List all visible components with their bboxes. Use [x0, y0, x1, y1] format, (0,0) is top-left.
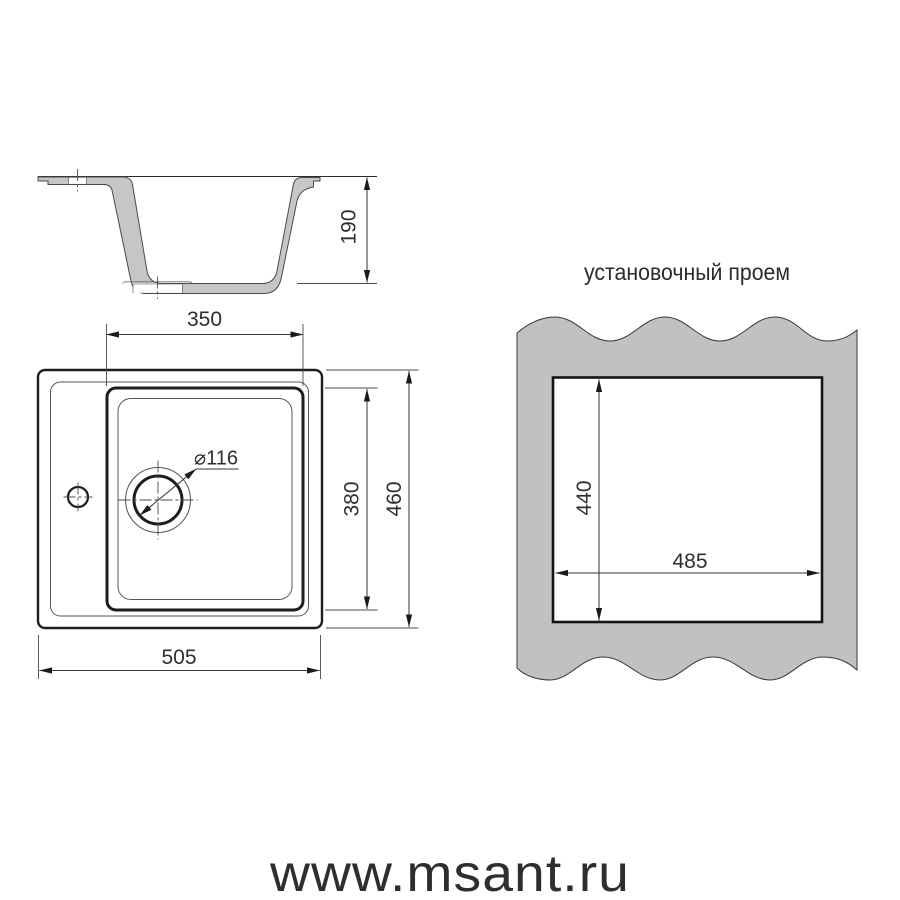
- sink-dimension-drawing: 190 ⌀116 350 380 460: [0, 0, 900, 900]
- dim-505-label: 505: [161, 646, 196, 669]
- section-view: 190: [38, 169, 377, 299]
- sink-rim-inner-edge: [51, 382, 309, 616]
- dim-350-label: 350: [187, 308, 222, 331]
- bowl-inner-edge: [118, 399, 292, 600]
- installation-opening-view: установочный проем 440 485: [517, 259, 857, 680]
- dia-leader-line: [140, 469, 196, 515]
- dim-460-label: 460: [383, 481, 406, 516]
- dim-190-label: 190: [337, 209, 360, 244]
- bowl-outer-edge: [107, 388, 303, 610]
- plan-view: ⌀116 350 380 460 505: [38, 308, 419, 679]
- drawing-svg: 190 ⌀116 350 380 460: [0, 0, 900, 900]
- sink-outer-edge: [38, 370, 322, 628]
- opening-title: установочный проем: [584, 259, 790, 285]
- section-profile: [38, 177, 320, 294]
- drain-diameter-label: ⌀116: [194, 448, 238, 470]
- watermark-text: www.msant.ru: [269, 845, 630, 900]
- dim-380-label: 380: [340, 481, 363, 516]
- dim-485-label: 485: [672, 550, 707, 573]
- dim-440-label: 440: [573, 480, 596, 515]
